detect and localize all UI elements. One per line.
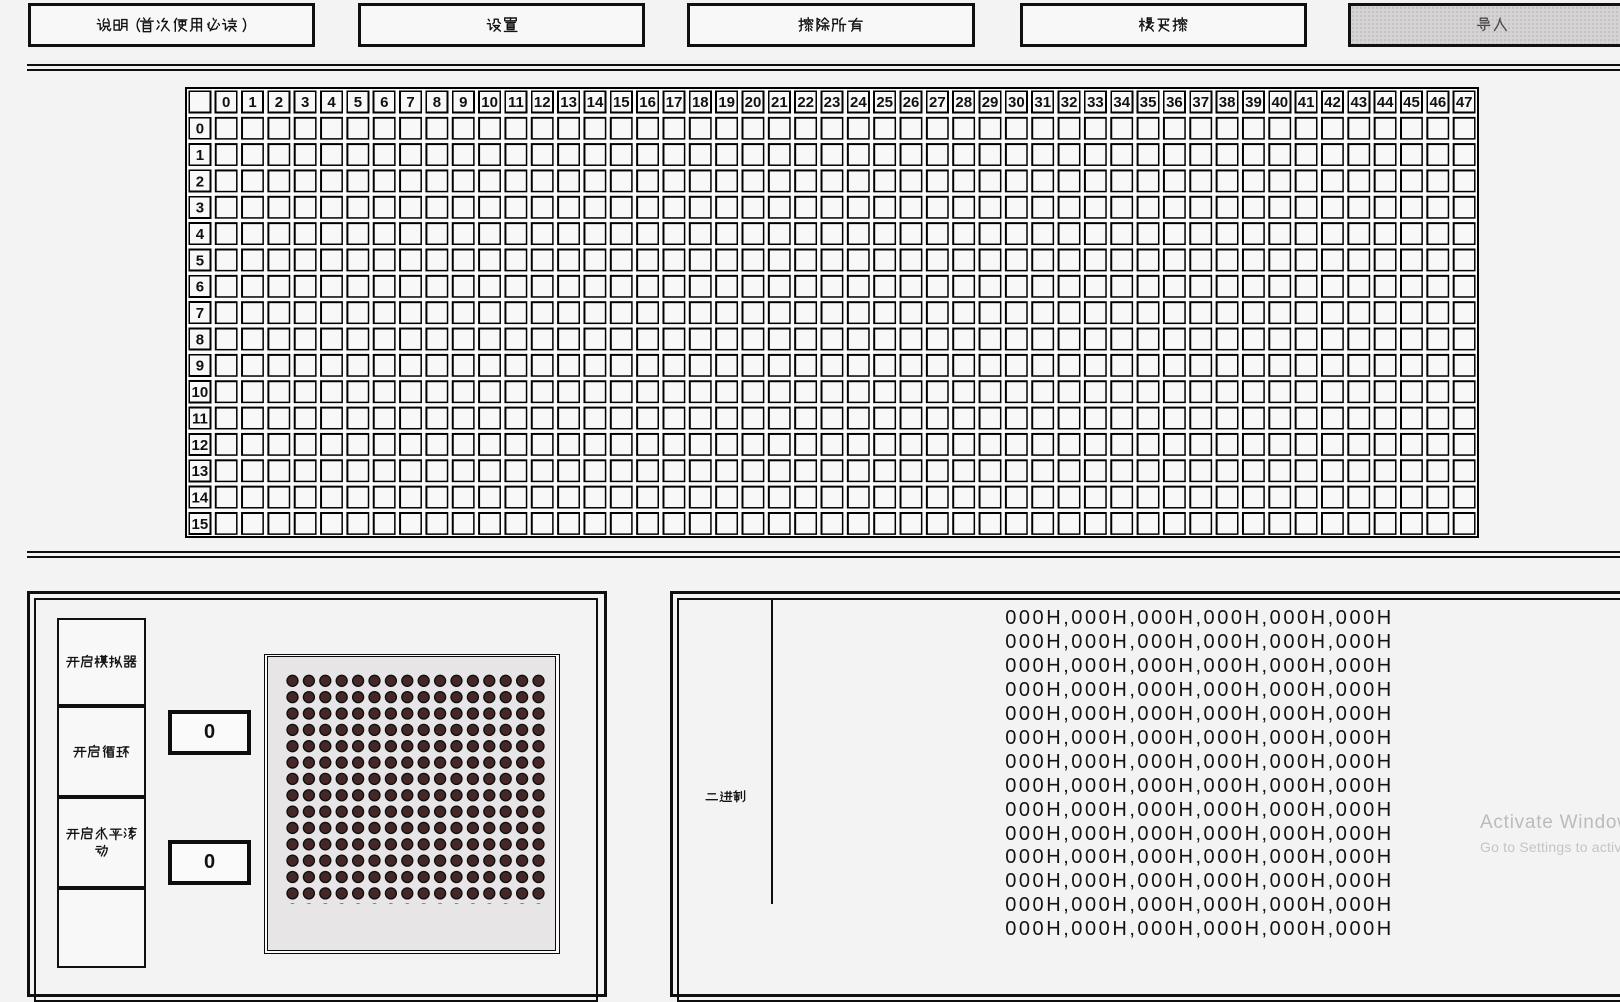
svg-text:8: 8: [196, 331, 204, 348]
svg-text:1: 1: [248, 94, 256, 111]
svg-text:26: 26: [903, 94, 920, 111]
svg-text:1: 1: [196, 147, 204, 164]
svg-text:46: 46: [1429, 94, 1446, 111]
svg-text:41: 41: [1298, 94, 1315, 111]
svg-text:11: 11: [508, 94, 524, 111]
svg-text:9: 9: [459, 94, 467, 111]
svg-text:12: 12: [534, 94, 551, 111]
svg-text:37: 37: [1192, 94, 1209, 111]
svg-text:47: 47: [1456, 94, 1473, 111]
svg-text:36: 36: [1166, 94, 1183, 111]
svg-text:5: 5: [196, 252, 204, 269]
svg-text:14: 14: [587, 94, 604, 111]
svg-text:16: 16: [639, 94, 656, 111]
svg-text:35: 35: [1140, 94, 1157, 111]
svg-text:44: 44: [1377, 94, 1394, 111]
svg-text:27: 27: [929, 94, 946, 111]
svg-text:7: 7: [406, 94, 414, 111]
svg-text:15: 15: [192, 516, 209, 533]
svg-text:0: 0: [222, 94, 230, 111]
svg-text:6: 6: [196, 279, 204, 296]
svg-text:15: 15: [613, 94, 630, 111]
svg-text:30: 30: [1008, 94, 1025, 111]
svg-text:23: 23: [824, 94, 841, 111]
svg-text:25: 25: [876, 94, 893, 111]
svg-text:13: 13: [560, 94, 577, 111]
svg-text:40: 40: [1271, 94, 1288, 111]
svg-text:8: 8: [433, 94, 441, 111]
svg-text:38: 38: [1219, 94, 1236, 111]
svg-text:12: 12: [192, 437, 209, 454]
svg-text:19: 19: [718, 94, 735, 111]
svg-text:4: 4: [196, 226, 205, 243]
svg-text:21: 21: [771, 94, 788, 111]
svg-text:14: 14: [192, 489, 209, 506]
svg-text:2: 2: [196, 173, 204, 190]
svg-text:28: 28: [955, 94, 972, 111]
svg-text:32: 32: [1061, 94, 1078, 111]
svg-text:31: 31: [1034, 94, 1051, 111]
svg-text:5: 5: [354, 94, 362, 111]
svg-text:17: 17: [666, 94, 683, 111]
svg-text:0: 0: [196, 121, 204, 138]
svg-text:9: 9: [196, 358, 204, 375]
svg-text:22: 22: [797, 94, 814, 111]
svg-text:11: 11: [192, 410, 208, 427]
svg-text:33: 33: [1087, 94, 1104, 111]
svg-text:24: 24: [850, 94, 867, 111]
svg-text:10: 10: [481, 94, 498, 111]
svg-text:42: 42: [1324, 94, 1341, 111]
svg-text:34: 34: [1113, 94, 1130, 111]
svg-text:6: 6: [380, 94, 388, 111]
svg-text:3: 3: [196, 200, 204, 217]
svg-text:43: 43: [1350, 94, 1367, 111]
svg-text:2: 2: [275, 94, 283, 111]
svg-text:10: 10: [192, 384, 209, 401]
svg-text:13: 13: [192, 463, 209, 480]
svg-text:29: 29: [982, 94, 999, 111]
svg-text:3: 3: [301, 94, 309, 111]
svg-text:18: 18: [692, 94, 709, 111]
svg-text:20: 20: [745, 94, 762, 111]
svg-text:39: 39: [1245, 94, 1262, 111]
svg-text:4: 4: [327, 94, 336, 111]
svg-text:7: 7: [196, 305, 204, 322]
svg-text:45: 45: [1403, 94, 1420, 111]
